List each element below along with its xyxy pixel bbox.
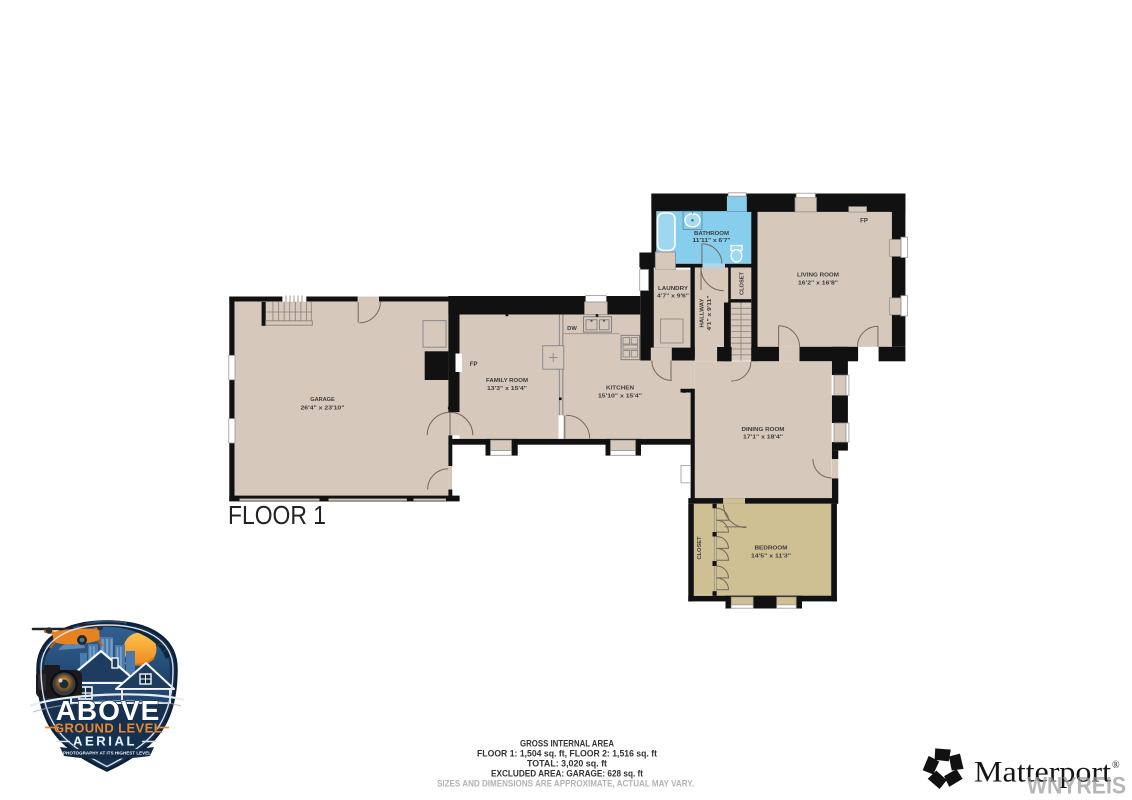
svg-text:SIZES AND DIMENSIONS ARE APPRO: SIZES AND DIMENSIONS ARE APPROXIMATE, AC… [437,779,694,789]
svg-text:EXCLUDED AREA: GARAGE: 628 sq.: EXCLUDED AREA: GARAGE: 628 sq. ft [491,769,643,779]
svg-text:GROSS INTERNAL AREA: GROSS INTERNAL AREA [520,739,615,749]
svg-text:TOTAL: 3,020 sq. ft: TOTAL: 3,020 sq. ft [527,759,607,769]
svg-text:FP: FP [470,362,478,368]
svg-text:13'3" x 15'4": 13'3" x 15'4" [487,386,527,392]
svg-text:KITCHEN: KITCHEN [606,386,634,392]
svg-text:BEDROOM: BEDROOM [755,545,788,551]
svg-text:PHOTOGRAPHY AT ITS HIGHEST LEV: PHOTOGRAPHY AT ITS HIGHEST LEVEL [63,751,151,756]
svg-text:FP: FP [860,219,868,225]
svg-text:26'4" x 23'10": 26'4" x 23'10" [301,406,345,412]
svg-text:DW: DW [567,326,577,332]
svg-text:®: ® [1112,760,1120,771]
svg-text:CLOSET: CLOSET [740,272,746,295]
svg-text:BATHROOM: BATHROOM [694,231,729,237]
svg-text:CLOSET: CLOSET [697,536,703,559]
svg-text:11'11" x 6'7": 11'11" x 6'7" [693,238,731,244]
svg-text:FAMILY ROOM: FAMILY ROOM [486,378,528,384]
svg-text:15'10" x 15'4": 15'10" x 15'4" [598,394,642,400]
svg-text:GARAGE: GARAGE [310,397,335,403]
svg-text:4'7" x 9'6": 4'7" x 9'6" [657,294,689,300]
svg-text:4'1" x 9'11": 4'1" x 9'11" [707,295,713,330]
svg-text:14'5" x 11'3": 14'5" x 11'3" [751,554,791,560]
svg-text:LAUNDRY: LAUNDRY [658,286,688,292]
svg-text:FLOOR 1: FLOOR 1 [228,500,326,530]
svg-text:FLOOR 1: 1,504 sq. ft, FLOOR 2: FLOOR 1: 1,504 sq. ft, FLOOR 2: 1,516 sq… [477,749,657,759]
svg-text:WNYREIS: WNYREIS [1027,773,1126,800]
svg-text:DINING ROOM: DINING ROOM [742,427,785,433]
svg-text:16'2" x 16'8": 16'2" x 16'8" [798,281,838,287]
svg-text:HALLWAY: HALLWAY [700,298,706,327]
svg-text:17'1" x 18'4": 17'1" x 18'4" [743,435,783,441]
svg-text:LIVING ROOM: LIVING ROOM [797,273,839,279]
svg-text:AERIAL: AERIAL [73,734,137,749]
